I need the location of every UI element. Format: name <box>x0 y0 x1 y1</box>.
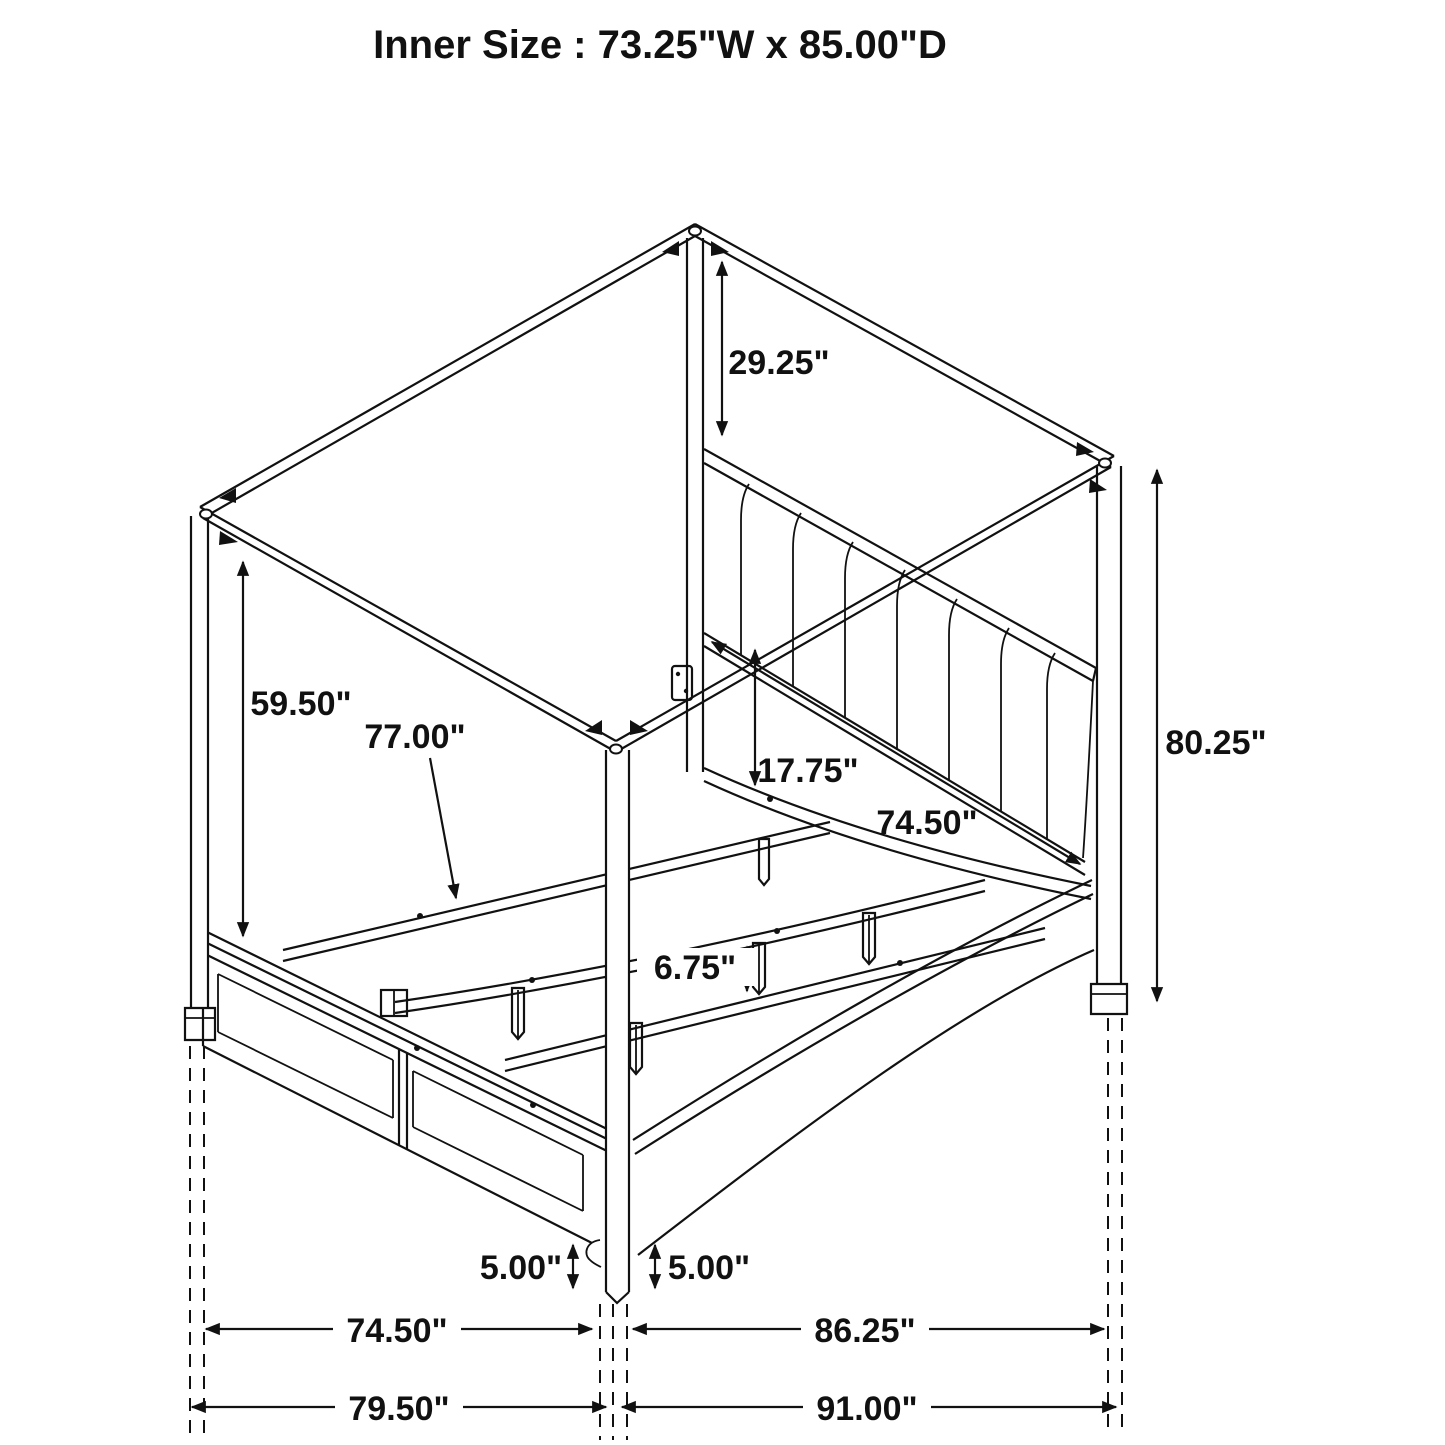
dim-label-platform-height: 17.75" <box>757 752 858 790</box>
canopy-corner-hole <box>1099 459 1111 468</box>
dim-label-overall-depth: 91.00" <box>816 1390 917 1428</box>
dim-label-headboard-height: 59.50" <box>250 685 351 723</box>
canopy-corner-hole <box>610 745 622 754</box>
dim-label-leg-height: 6.75" <box>654 949 736 987</box>
dim-label-post-height: 80.25" <box>1165 724 1266 762</box>
diagram-page: 29.25" 59.50" 77.00" 17.75" 74.50" 80.25… <box>0 0 1445 1445</box>
dim-label-headboard-rail-width: 74.50" <box>876 804 977 842</box>
projection-lines <box>190 1018 1122 1440</box>
dim-label-overall-width: 79.50" <box>348 1390 449 1428</box>
dim-label-frame-width: 74.50" <box>346 1312 447 1350</box>
dim-label-slat-rail: 77.00" <box>364 718 465 756</box>
dim-label-right-clearance: 5.00" <box>668 1249 750 1287</box>
dim-label-frame-depth: 86.25" <box>814 1312 915 1350</box>
page-title: Inner Size : 73.25"W x 85.00"D <box>373 23 947 67</box>
bed-platform <box>283 768 1107 1255</box>
canopy-corner-hole <box>689 227 701 236</box>
bed-dimension-diagram: 29.25" 59.50" 77.00" 17.75" 74.50" 80.25… <box>0 0 1445 1445</box>
canopy-corner-hole <box>200 510 212 519</box>
dim-label-canopy-to-headboard: 29.25" <box>728 344 829 382</box>
canopy-frame <box>200 224 1114 754</box>
dim-label-left-clearance: 5.00" <box>480 1249 562 1287</box>
storage-footboard <box>203 931 607 1267</box>
